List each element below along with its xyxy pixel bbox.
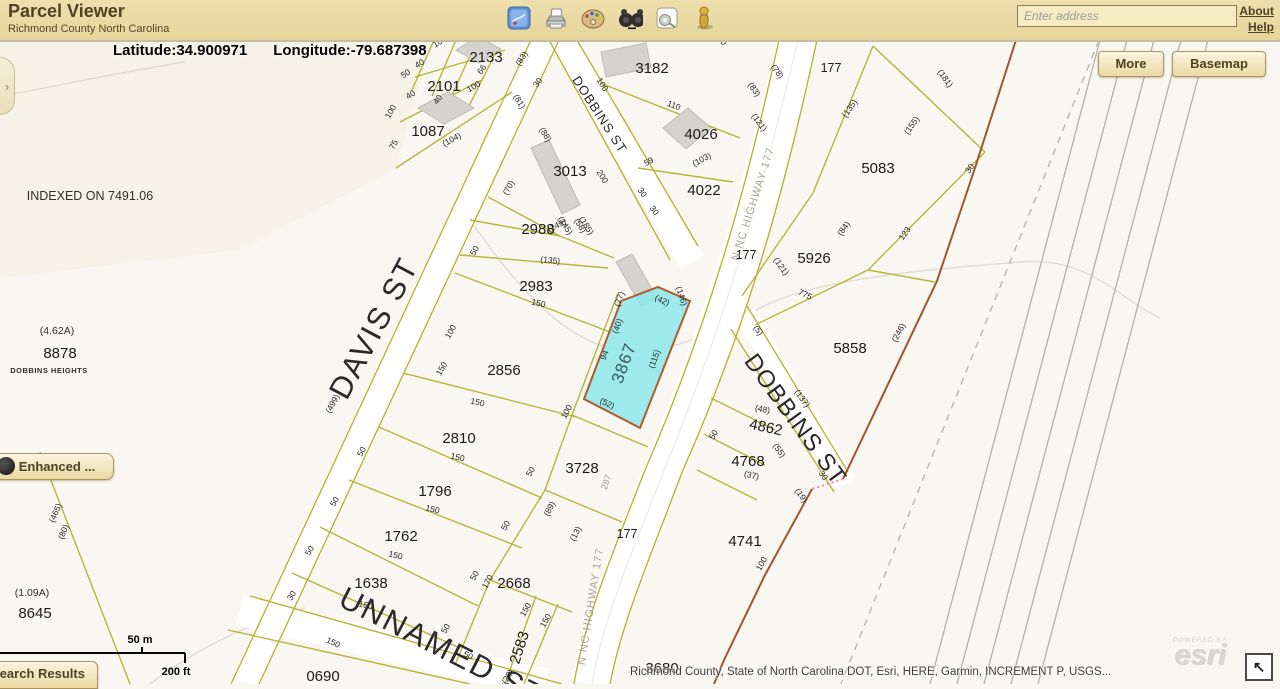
map-label: 2983 — [519, 278, 552, 295]
overview-map-icon[interactable] — [506, 4, 532, 31]
app-title: Parcel Viewer — [8, 1, 125, 22]
toolbar — [506, 4, 717, 31]
app-subtitle: Richmond County North Carolina — [8, 23, 169, 35]
address-search-input[interactable] — [1017, 5, 1237, 27]
map-label: (4.62A) — [40, 325, 74, 337]
map-label: 2856 — [487, 362, 520, 379]
map-label: 5083 — [861, 160, 894, 177]
coordinate-readout: Latitude:34.900971Longitude:-79.687398 — [113, 42, 453, 59]
map-label: (1.09A) — [15, 587, 49, 599]
map-canvas[interactable]: 2133210110873182402640223013298829832856… — [0, 0, 1280, 684]
map-attribution: Richmond County, State of North Carolina… — [630, 666, 1111, 678]
map-label: 177 — [617, 527, 638, 541]
about-link[interactable]: About — [1239, 4, 1274, 18]
map-label: 177 — [821, 61, 842, 75]
map-label: 2810 — [442, 430, 475, 447]
enhanced-button[interactable]: Enhanced ... — [0, 453, 114, 480]
map-label: 2133 — [469, 49, 502, 66]
binoculars-icon[interactable] — [617, 4, 643, 31]
panel-expand-chevron[interactable]: › — [0, 57, 15, 115]
map-label: 8878 — [43, 345, 76, 362]
header-bar: Parcel Viewer Richmond County North Caro… — [0, 0, 1280, 42]
map-label: 2668 — [497, 575, 530, 592]
more-button[interactable]: More — [1098, 51, 1164, 77]
identify-person-icon[interactable] — [691, 4, 717, 31]
measure-icon[interactable] — [654, 4, 680, 31]
map-label: 5926 — [797, 250, 830, 267]
map-label: DOBBINS HEIGHTS — [10, 366, 88, 375]
scale-metric-label: 50 m — [127, 634, 152, 646]
map-label: 3013 — [553, 163, 586, 180]
fullscreen-arrow-button[interactable]: ↖ — [1245, 653, 1273, 681]
map-label: 5858 — [833, 340, 866, 357]
map-label: 8645 — [18, 605, 51, 622]
longitude-value: Longitude:-79.687398 — [273, 42, 426, 59]
map-label: 1087 — [411, 123, 444, 140]
map-label: 4741 — [728, 533, 761, 550]
map-label: 1762 — [384, 528, 417, 545]
latitude-value: Latitude:34.900971 — [113, 42, 247, 59]
help-link[interactable]: Help — [1248, 20, 1274, 34]
map-label: 1796 — [418, 483, 451, 500]
palette-icon[interactable] — [580, 4, 606, 31]
scale-imperial-label: 200 ft — [162, 666, 191, 678]
basemap-button[interactable]: Basemap — [1172, 51, 1266, 77]
map-label: 4022 — [687, 182, 720, 199]
map-label: 3182 — [635, 60, 668, 77]
esri-logo: POWERED BY esri — [1158, 637, 1242, 666]
map-label: 3728 — [565, 460, 598, 477]
map-label: (135) — [540, 254, 561, 266]
map-label: 4768 — [731, 453, 764, 470]
map-label: 2101 — [427, 78, 460, 95]
print-icon[interactable] — [543, 4, 569, 31]
esri-wordmark: esri — [1158, 644, 1242, 666]
search-results-button[interactable]: Search Results — [0, 661, 98, 689]
enhanced-button-icon — [0, 457, 15, 475]
map-label: 4026 — [684, 126, 717, 143]
map-label: 0690 — [306, 668, 339, 684]
map-label: INDEXED ON 7491.06 — [27, 189, 153, 203]
